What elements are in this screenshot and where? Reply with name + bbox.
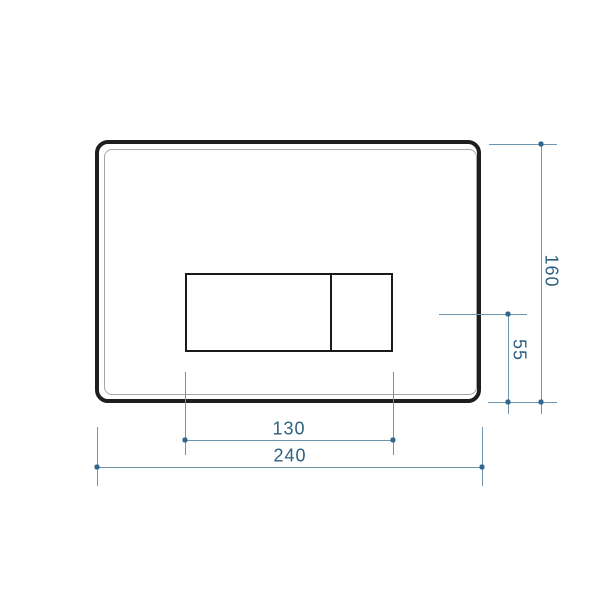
tick-button-offset-bottom xyxy=(506,400,511,405)
tick-plate-height-top xyxy=(539,142,544,147)
flush-plate-inner-outline xyxy=(104,149,477,395)
tick-plate-height-bottom xyxy=(539,400,544,405)
dim-label-button-width: 130 xyxy=(272,419,305,440)
dim-label-button-offset: 55 xyxy=(509,339,530,361)
tick-button-offset-top xyxy=(506,312,511,317)
ext-line-button-centerline-right xyxy=(439,314,527,316)
flush-button-panel xyxy=(185,273,393,352)
dim-line-plate-width xyxy=(97,467,482,469)
dim-line-button-offset xyxy=(508,314,510,414)
ext-line-plate-bottom-right xyxy=(488,402,557,404)
tick-plate-width-left xyxy=(95,465,100,470)
tick-button-width-left xyxy=(183,438,188,443)
dim-label-plate-height: 160 xyxy=(541,254,562,287)
small-flush-button xyxy=(330,275,392,350)
technical-drawing-canvas: 160 55 130 240 xyxy=(0,0,600,600)
tick-plate-width-right xyxy=(480,465,485,470)
ext-line-plate-right xyxy=(482,427,484,486)
ext-line-button-right xyxy=(393,372,395,455)
ext-line-plate-left xyxy=(97,427,99,486)
ext-line-button-left xyxy=(185,372,187,455)
dim-line-button-width xyxy=(185,440,393,442)
dim-label-plate-width: 240 xyxy=(273,446,306,467)
tick-button-width-right xyxy=(391,438,396,443)
large-flush-button xyxy=(187,275,330,350)
ext-line-plate-top-right xyxy=(489,144,557,146)
